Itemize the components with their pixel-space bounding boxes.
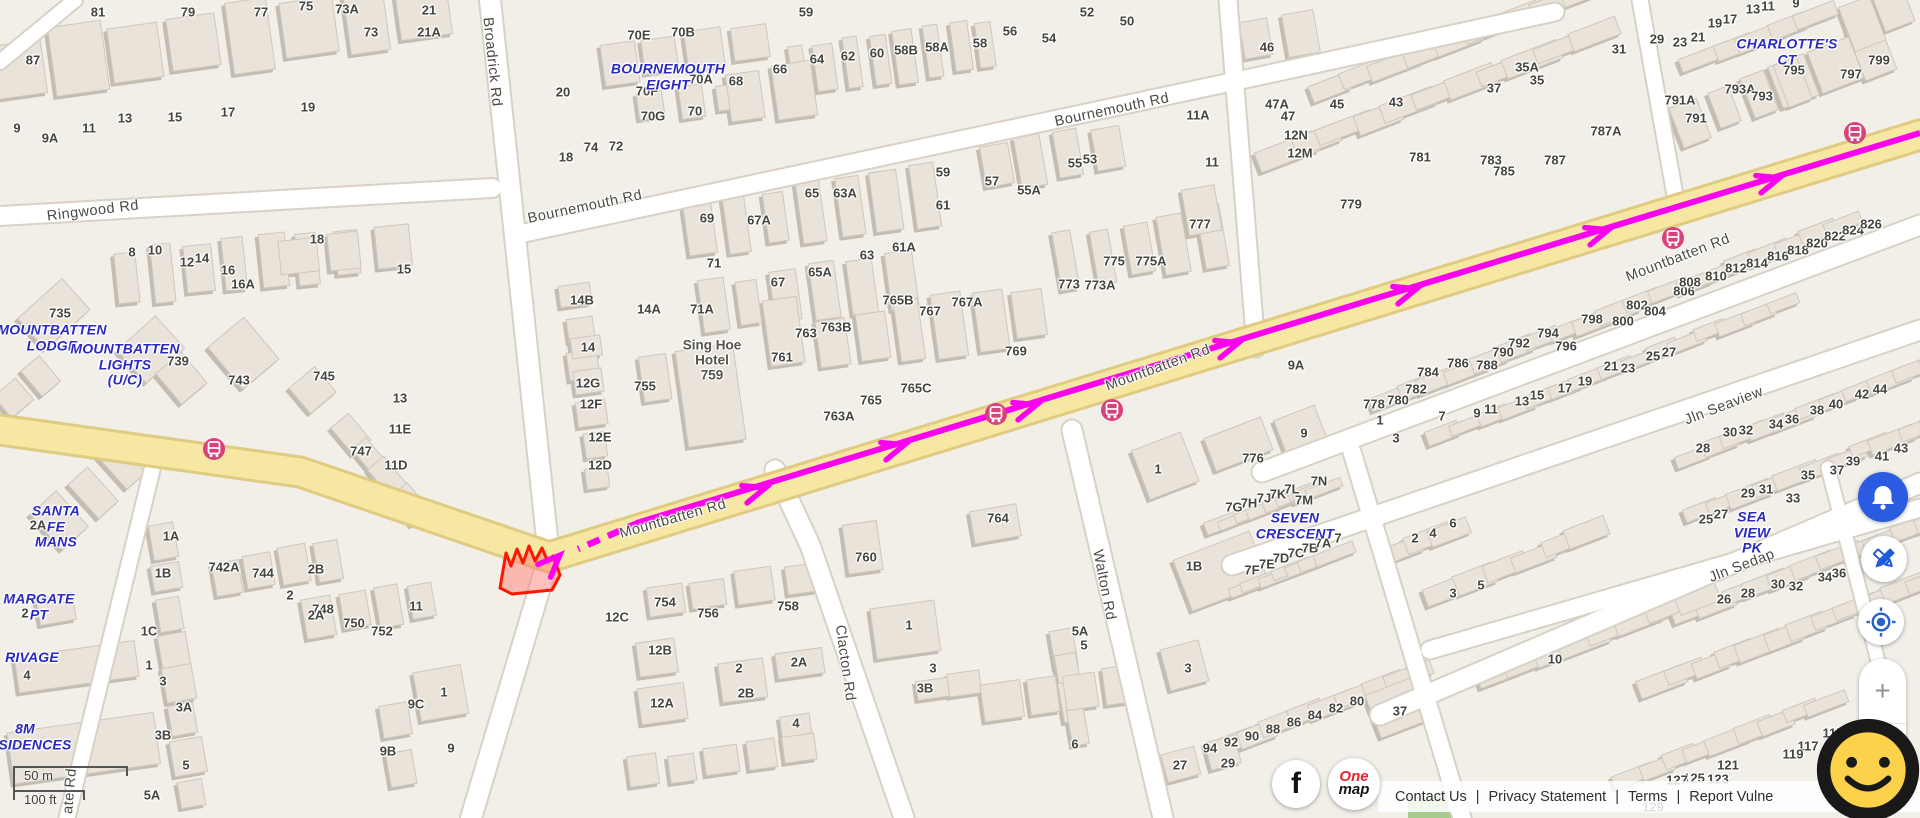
- facebook-icon: f: [1291, 767, 1301, 801]
- smiley-icon: [1813, 715, 1920, 818]
- notifications-button[interactable]: [1858, 472, 1908, 522]
- map-graphics: [0, 0, 1920, 818]
- bus-stop-icon[interactable]: [1662, 227, 1684, 249]
- zoom-in-button[interactable]: +: [1859, 659, 1906, 724]
- footer-link-contact-us[interactable]: Contact Us: [1395, 789, 1467, 805]
- bus-stop-icon[interactable]: [1844, 122, 1866, 144]
- bus-stop-icon[interactable]: [203, 438, 225, 460]
- bus-stop-icon[interactable]: [1101, 399, 1123, 421]
- footer-links: Contact Us|Privacy Statement|Terms|Repor…: [1395, 781, 1773, 812]
- footer-separator: |: [1676, 789, 1680, 805]
- onemap-logo-map: map: [1339, 784, 1370, 797]
- bell-icon: [1869, 483, 1897, 511]
- locate-me-button[interactable]: [1858, 599, 1904, 645]
- footer-separator: |: [1615, 789, 1619, 805]
- scale-metric-label: 50 m: [24, 768, 53, 783]
- footer-link-privacy-statement[interactable]: Privacy Statement: [1489, 789, 1607, 805]
- footer-link-terms[interactable]: Terms: [1628, 789, 1667, 805]
- drawing-tools-icon: [1869, 544, 1899, 574]
- bus-stop-icon[interactable]: [985, 403, 1007, 425]
- feedback-smiley-button[interactable]: [1813, 715, 1920, 818]
- drawing-tools-button[interactable]: [1861, 536, 1907, 582]
- facebook-button: f: [1272, 760, 1320, 808]
- footer-separator: |: [1476, 789, 1480, 805]
- scale-imperial-label: 100 ft: [24, 792, 57, 807]
- map-canvas[interactable]: 817977758799A111315171973A732121A8101214…: [0, 0, 1920, 818]
- footer-link-report-vulne[interactable]: Report Vulne: [1689, 789, 1773, 805]
- locate-icon: [1865, 606, 1897, 638]
- onemap-logo[interactable]: One map: [1328, 758, 1380, 810]
